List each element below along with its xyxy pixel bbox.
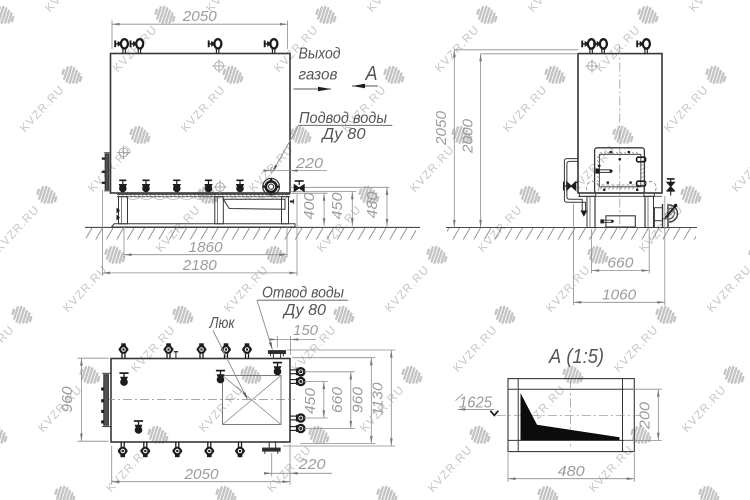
svg-text:450: 450 (329, 192, 346, 220)
svg-text:220: 220 (297, 456, 326, 473)
svg-text:2050: 2050 (183, 466, 219, 483)
svg-text:960: 960 (59, 386, 76, 413)
svg-text:480: 480 (364, 191, 381, 219)
svg-text:2180: 2180 (182, 257, 218, 274)
svg-text:1130: 1130 (370, 382, 387, 416)
svg-text:Люк: Люк (209, 315, 236, 332)
svg-text:960: 960 (350, 386, 367, 413)
svg-text:Ду 80: Ду 80 (320, 126, 365, 143)
svg-text:Подвод воды: Подвод воды (299, 110, 387, 127)
svg-text:2050: 2050 (182, 8, 218, 25)
svg-text:450: 450 (302, 387, 319, 414)
svg-text:2050: 2050 (433, 110, 450, 146)
svg-text:газов: газов (299, 67, 338, 84)
svg-text:660: 660 (329, 386, 346, 413)
svg-text:660: 660 (607, 255, 634, 272)
svg-text:150: 150 (293, 322, 319, 339)
svg-text:Выход: Выход (299, 46, 341, 63)
svg-text:200: 200 (637, 401, 654, 430)
svg-text:220: 220 (295, 155, 324, 172)
svg-text:2000: 2000 (460, 118, 477, 154)
svg-text:1860: 1860 (189, 239, 224, 256)
svg-text:1060: 1060 (602, 287, 637, 304)
svg-text:А: А (365, 63, 378, 85)
svg-text:Ду 80: Ду 80 (282, 302, 326, 319)
svg-text:Отвод воды: Отвод воды (262, 285, 344, 302)
svg-text:400: 400 (301, 192, 318, 220)
svg-text:А (1:5): А (1:5) (548, 346, 604, 368)
svg-text:480: 480 (558, 463, 586, 480)
